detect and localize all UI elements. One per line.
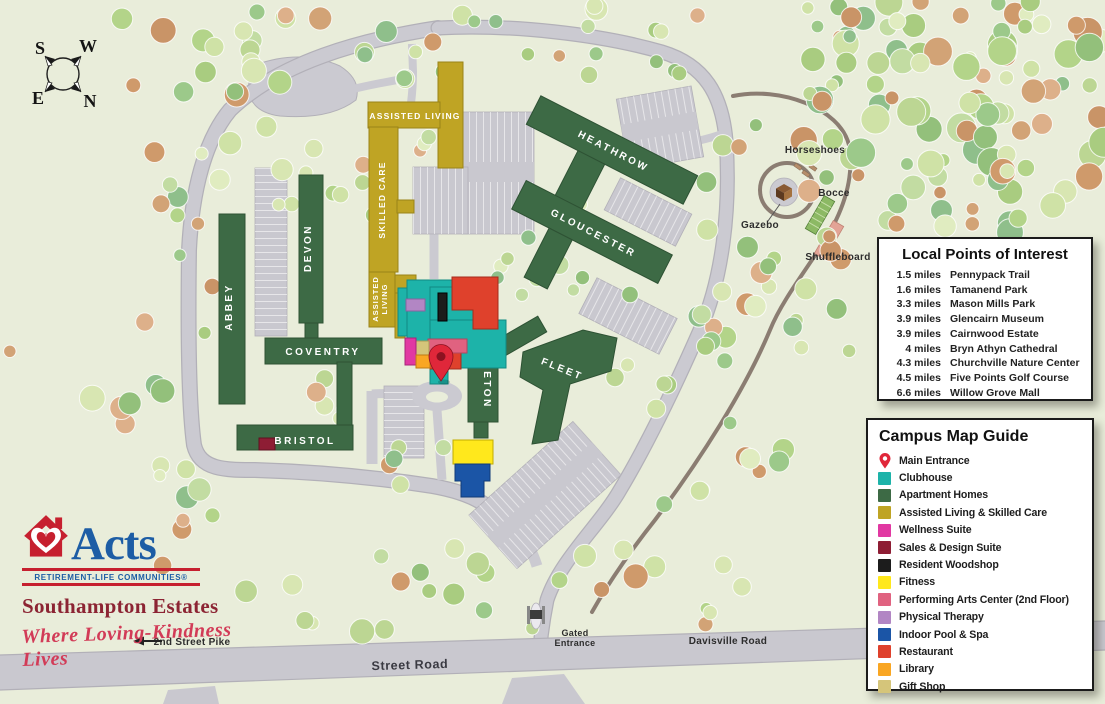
tree	[934, 215, 956, 237]
tree	[712, 135, 733, 156]
building-fitness	[453, 440, 493, 464]
tree	[594, 582, 610, 598]
tree	[991, 0, 1006, 11]
tree	[411, 563, 429, 581]
tree	[468, 15, 481, 28]
tree	[897, 97, 926, 126]
poi-item: 3.9 milesGlencairn Museum	[887, 312, 1083, 327]
label-assisted-living: ASSISTED LIVING	[369, 111, 460, 121]
label-gated-1: Gated	[561, 628, 588, 638]
tree	[745, 295, 767, 317]
tree	[271, 159, 293, 181]
tree	[812, 91, 832, 111]
tree	[966, 203, 979, 216]
tree	[162, 177, 177, 192]
building-library	[416, 355, 430, 368]
tree	[826, 299, 847, 320]
label-street-road: Street Road	[371, 657, 448, 673]
label-assisted-lower-2: LIVING	[380, 283, 389, 314]
points-of-interest-panel: Local Points of Interest 1.5 milesPennyp…	[877, 237, 1093, 401]
tree	[1082, 78, 1097, 93]
poi-item: 1.5 milesPennypack Trail	[887, 268, 1083, 283]
tree	[1032, 113, 1053, 134]
tree	[198, 326, 211, 339]
tree	[1018, 19, 1033, 34]
tree	[917, 150, 944, 177]
tree	[177, 460, 196, 479]
tree	[357, 47, 373, 63]
tree	[553, 50, 565, 62]
poi-item: 3.9 milesCairnwood Estate	[887, 327, 1083, 342]
tree	[867, 52, 890, 75]
tree	[209, 169, 230, 190]
tree	[391, 572, 410, 591]
tree	[1023, 60, 1040, 77]
legend-item: Main Entrance	[878, 452, 1083, 469]
tree	[424, 33, 442, 51]
label-devon: DEVON	[303, 224, 314, 272]
poi-item: 1.6 milesTamanend Park	[887, 283, 1083, 298]
tree	[697, 219, 718, 240]
legend-swatch	[878, 559, 891, 572]
tree	[191, 217, 204, 230]
legend-item: Gift Shop	[878, 678, 1083, 695]
tree	[375, 620, 395, 640]
legend-item: Library	[878, 661, 1083, 678]
tree	[375, 21, 397, 43]
legend-item: Physical Therapy	[878, 609, 1083, 626]
tree	[622, 286, 639, 303]
tree	[445, 539, 465, 559]
tree	[567, 284, 579, 296]
legend-item: Resident Woodshop	[878, 556, 1083, 573]
tree	[350, 619, 375, 644]
tree	[959, 92, 980, 113]
tree	[1009, 209, 1027, 227]
tree	[204, 278, 220, 294]
tree	[306, 382, 326, 402]
tree	[656, 376, 672, 392]
building-sales-design-suite	[259, 438, 275, 450]
tree	[296, 612, 314, 630]
legend-swatch	[878, 593, 891, 606]
tree	[272, 198, 285, 211]
building-wellness-suite	[405, 338, 416, 365]
tree	[218, 131, 241, 154]
tree	[672, 66, 687, 81]
tree	[4, 345, 16, 357]
tree	[126, 78, 141, 93]
tree	[332, 187, 348, 203]
legend-swatch	[878, 576, 891, 589]
tree	[614, 540, 634, 560]
tree	[647, 399, 666, 418]
tree	[466, 552, 489, 575]
tree	[823, 230, 836, 243]
label-skilled-care: SKILLED CARE	[377, 161, 387, 238]
tree	[1075, 33, 1103, 61]
tree	[794, 340, 809, 355]
tree	[696, 172, 717, 193]
tree	[188, 478, 211, 501]
campus-map-page: ABBEY DEVON COVENTRY BRISTOL HEATHROW GL…	[0, 0, 1105, 704]
tree	[118, 392, 141, 415]
acts-subtitle: RETIREMENT-LIFE COMMUNITIES®	[22, 568, 200, 586]
label-coventry: COVENTRY	[285, 347, 360, 358]
tree	[692, 305, 711, 324]
legend-swatch	[878, 645, 891, 658]
tree	[965, 217, 979, 231]
tree	[1017, 159, 1034, 176]
tree	[422, 584, 437, 599]
tree	[843, 30, 856, 43]
building-physical-therapy	[406, 299, 425, 311]
label-davisville-road: Davisville Road	[689, 636, 767, 647]
label-eton: ETON	[481, 371, 492, 409]
tree	[697, 337, 715, 355]
tree	[396, 70, 413, 87]
tree	[1076, 163, 1103, 190]
tree	[769, 451, 790, 472]
label-abbey: ABBEY	[224, 283, 235, 331]
legend-item: Sales & Design Suite	[878, 539, 1083, 556]
tree	[256, 116, 277, 137]
acts-wordmark: Acts	[71, 525, 156, 565]
legend-swatch	[878, 611, 891, 624]
tree	[783, 317, 802, 336]
tree	[623, 564, 648, 589]
tree	[703, 605, 717, 619]
legend-item: Wellness Suite	[878, 522, 1083, 539]
tree	[740, 448, 761, 469]
legend-item: Fitness	[878, 574, 1083, 591]
tree	[1012, 121, 1031, 140]
tree	[443, 583, 465, 605]
tree	[836, 52, 857, 73]
tree	[195, 61, 217, 83]
tree	[802, 2, 814, 14]
tree	[690, 8, 705, 23]
tree	[811, 20, 824, 33]
tree	[953, 53, 980, 80]
tree	[733, 578, 752, 597]
tree	[489, 15, 503, 29]
legend-swatch	[878, 628, 891, 641]
compass-s: S	[35, 38, 45, 58]
tree	[150, 18, 176, 44]
tree	[621, 358, 635, 372]
tree	[841, 7, 862, 28]
tree	[575, 271, 589, 285]
tree	[973, 125, 997, 149]
legend-item: Clubhouse	[878, 469, 1083, 486]
poi-item: 3.3 milesMason Mills Park	[887, 297, 1083, 312]
tree	[723, 416, 737, 430]
tree	[1021, 79, 1045, 103]
tree	[392, 476, 410, 494]
tree	[521, 48, 534, 61]
acts-house-heart-logo-icon	[22, 514, 70, 565]
label-gated-2: Entrance	[555, 638, 596, 648]
tree	[846, 138, 875, 167]
tree	[1088, 106, 1105, 129]
tree	[656, 496, 673, 513]
legend-item: Restaurant	[878, 643, 1083, 660]
tree	[355, 175, 371, 191]
tree	[801, 47, 825, 71]
tree	[1032, 15, 1051, 34]
tree	[580, 66, 597, 83]
tree	[861, 105, 890, 134]
tree	[586, 0, 603, 14]
tree	[999, 71, 1013, 85]
tree	[144, 142, 165, 163]
poi-panel-title: Local Points of Interest	[887, 246, 1083, 263]
label-shuffleboard: Shuffleboard	[805, 252, 870, 263]
legend-swatch	[878, 506, 891, 519]
tree	[934, 186, 946, 198]
label-bristol: BRISTOL	[274, 436, 335, 447]
tree	[501, 252, 514, 265]
tree	[151, 379, 175, 403]
legend-swatch	[878, 472, 891, 485]
tree	[282, 575, 303, 596]
community-name: Southampton Estates	[22, 594, 272, 619]
tree	[234, 22, 252, 40]
tree	[749, 119, 762, 132]
tree	[435, 440, 451, 456]
tree	[795, 278, 817, 300]
tree	[866, 75, 884, 93]
tree	[515, 288, 528, 301]
tree	[713, 282, 732, 301]
tree	[885, 91, 899, 105]
label-horseshoes: Horseshoes	[785, 145, 845, 156]
legend-swatch	[878, 680, 891, 693]
tree	[888, 215, 905, 232]
tree	[760, 258, 777, 275]
poi-item: 6.6 milesWillow Grove Mall	[887, 386, 1083, 401]
legend-item: Assisted Living & Skilled Care	[878, 504, 1083, 521]
compass-w: W	[79, 36, 97, 56]
tree	[226, 83, 243, 100]
tagline: Where Loving-Kindness Lives	[21, 617, 272, 672]
poi-item: 4 milesBryn Athyn Cathedral	[887, 342, 1083, 357]
tree	[1040, 193, 1066, 219]
poi-item: 4.3 milesChurchville Nature Center	[887, 356, 1083, 371]
tree	[205, 37, 224, 56]
tree	[650, 55, 664, 69]
legend-swatch	[878, 524, 891, 537]
tree	[988, 37, 1017, 66]
tree	[551, 572, 568, 589]
compass-e: E	[32, 88, 44, 108]
tree	[901, 158, 914, 171]
tree	[715, 556, 733, 574]
tree	[654, 24, 669, 39]
tree	[154, 470, 166, 482]
legend-swatch	[878, 541, 891, 554]
tree	[690, 481, 709, 500]
campus-map-guide-panel: Campus Map Guide Main Entrance Clubhouse…	[866, 418, 1094, 691]
tree	[249, 4, 265, 20]
tree	[589, 47, 603, 61]
legend-swatch	[878, 663, 891, 676]
tree	[309, 7, 332, 30]
tree	[284, 196, 299, 211]
label-gazebo: Gazebo	[741, 220, 779, 231]
tree	[819, 170, 834, 185]
tree	[581, 19, 595, 33]
tree	[1000, 164, 1015, 179]
tree	[409, 45, 423, 59]
tree	[170, 208, 185, 223]
label-assisted-lower-1: ASSISTED	[371, 276, 380, 322]
tree	[79, 385, 105, 411]
tree	[421, 129, 436, 144]
tree	[174, 249, 186, 261]
tree	[952, 7, 969, 24]
tree	[1067, 16, 1085, 34]
tree	[842, 344, 855, 357]
tree	[717, 353, 733, 369]
legend-item: Performing Arts Center (2nd Floor)	[878, 591, 1083, 608]
cul-de-sac	[412, 381, 462, 411]
tree	[374, 549, 389, 564]
tree	[574, 544, 597, 567]
building-resident-woodshop	[438, 293, 447, 321]
tree	[901, 175, 926, 200]
tree	[195, 147, 208, 160]
compass-n: N	[84, 91, 97, 111]
tree	[973, 173, 986, 186]
tree	[136, 313, 154, 331]
tree	[111, 8, 132, 29]
tree	[268, 70, 292, 94]
tree	[173, 82, 193, 102]
tree	[475, 602, 492, 619]
tree	[521, 230, 536, 245]
tree	[911, 53, 930, 72]
building-gift-shop	[416, 341, 429, 355]
tree	[737, 236, 759, 258]
legend-item: Apartment Homes	[878, 487, 1083, 504]
branding-block: Acts RETIREMENT-LIFE COMMUNITIES® Southa…	[22, 514, 272, 672]
tree	[385, 450, 403, 468]
tree	[241, 58, 266, 83]
poi-item: 4.5 milesFive Points Golf Course	[887, 371, 1083, 386]
tree	[305, 139, 323, 157]
legend-title: Campus Map Guide	[879, 428, 1083, 446]
tree	[889, 13, 906, 30]
main-entrance-pin-icon	[878, 453, 891, 469]
tree	[152, 195, 170, 213]
tree	[277, 7, 294, 24]
tree	[731, 139, 747, 155]
label-bocce: Bocce	[818, 188, 850, 199]
legend-item: Indoor Pool & Spa	[878, 626, 1083, 643]
legend-swatch	[878, 489, 891, 502]
tree	[852, 169, 865, 182]
